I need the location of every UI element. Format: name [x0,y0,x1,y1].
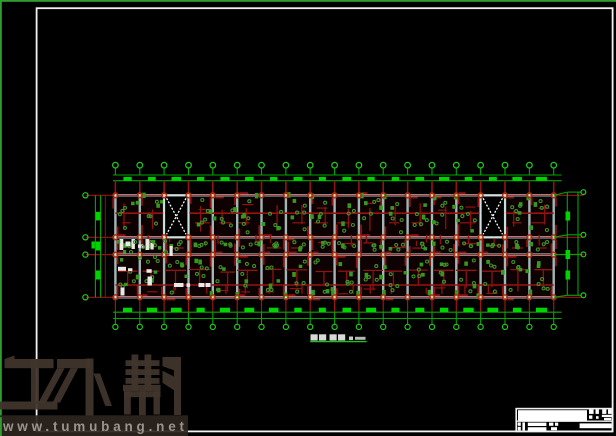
svg-text:www.tumubang.net: www.tumubang.net [2,419,188,434]
